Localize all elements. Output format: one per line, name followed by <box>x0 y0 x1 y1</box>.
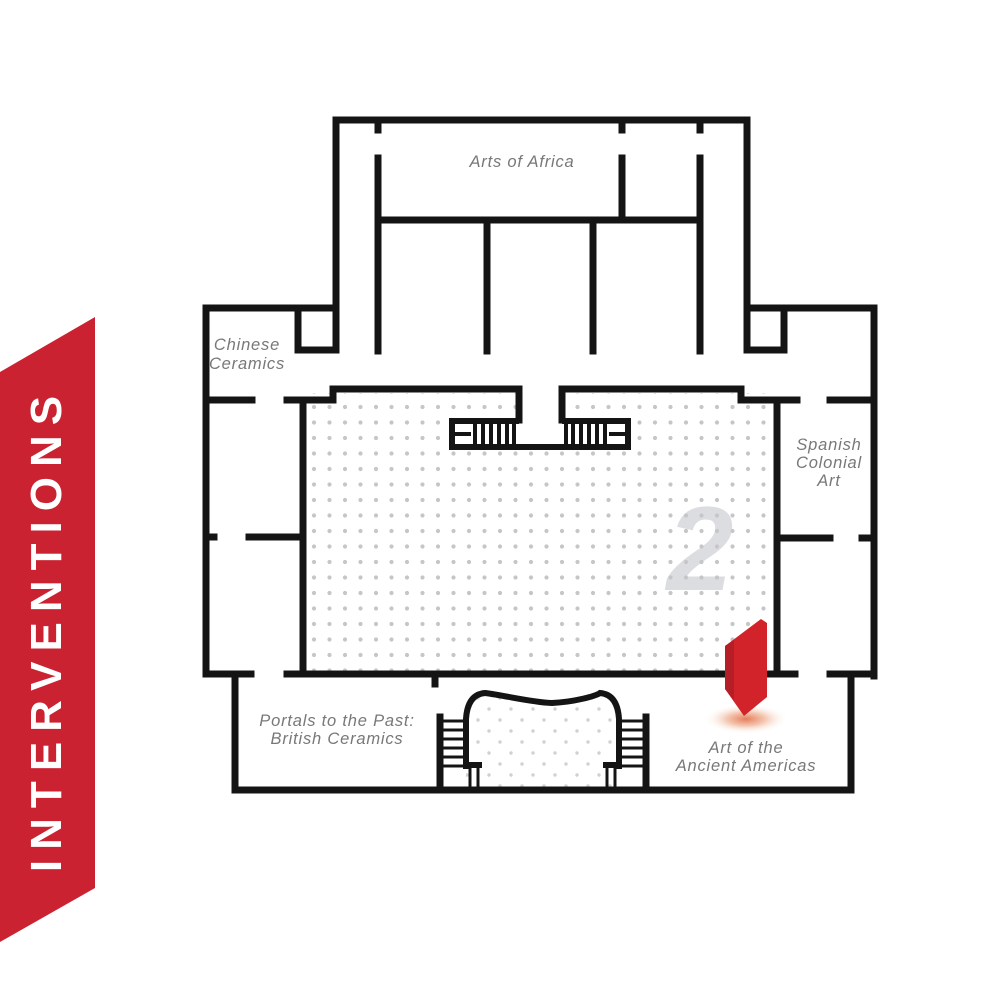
africa-label: Arts of Africa <box>468 153 574 171</box>
spanish-label-line3: Art <box>816 472 841 490</box>
chinese-label-line2: Ceramics <box>209 355 285 373</box>
portals-label-line2: British Ceramics <box>271 730 404 748</box>
chinese-label-line1: Chinese <box>214 336 280 354</box>
americas-label-line2: Ancient Americas <box>675 757 817 775</box>
location-pin-shade <box>725 640 734 700</box>
theater-floor <box>466 693 619 788</box>
spanish-label-line2: Colonial <box>796 454 863 472</box>
museum-floor-plan-page: INTERVENTIONS 2 <box>0 0 1000 1000</box>
portals-label-line1: Portals to the Past: <box>259 712 414 730</box>
spanish-label-line1: Spanish <box>796 436 861 454</box>
floorplan-svg: 2 Arts of Africa Chinese <box>0 0 1000 1000</box>
americas-label-line1: Art of the <box>708 739 784 757</box>
